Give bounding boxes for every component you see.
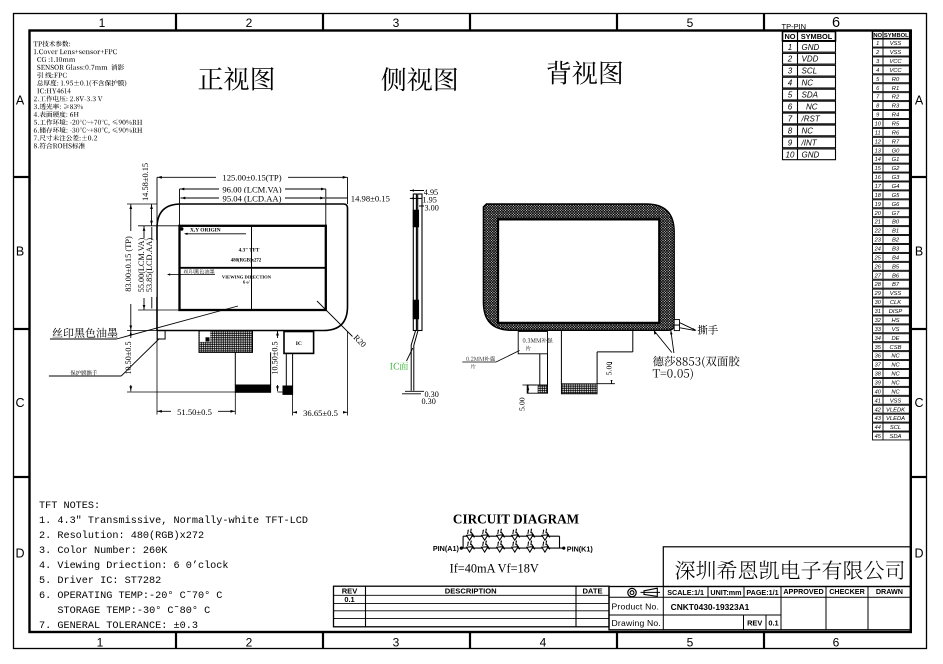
svg-text:43: 43 <box>875 416 882 422</box>
svg-text:3. Color Number: 260K: 3. Color Number: 260K <box>39 545 168 557</box>
svg-text:PIN(A1): PIN(A1) <box>433 544 460 553</box>
svg-text:6: 6 <box>832 15 840 31</box>
svg-text:10: 10 <box>875 122 882 128</box>
svg-text:IC: IC <box>296 341 302 347</box>
svg-text:B3: B3 <box>892 247 900 253</box>
svg-text:20: 20 <box>874 211 882 217</box>
svg-text:1: 1 <box>788 43 792 52</box>
svg-text:3: 3 <box>788 67 793 76</box>
svg-text:40: 40 <box>875 389 882 395</box>
svg-text:33: 33 <box>875 327 882 333</box>
svg-text:PAGE:1/1: PAGE:1/1 <box>746 588 778 597</box>
svg-text:14.58±0.15: 14.58±0.15 <box>141 163 150 201</box>
svg-text:39: 39 <box>875 380 881 386</box>
svg-text:8: 8 <box>788 126 793 135</box>
svg-text:53.85(LCD.AA): 53.85(LCD.AA) <box>145 238 154 292</box>
svg-text:B7: B7 <box>892 282 900 288</box>
svg-text:14: 14 <box>875 157 881 163</box>
svg-text:NC: NC <box>891 354 900 360</box>
svg-text:GND: GND <box>802 43 820 52</box>
svg-text:DE: DE <box>891 336 899 342</box>
svg-text:11: 11 <box>875 130 881 136</box>
svg-text:27: 27 <box>874 273 882 279</box>
svg-text:UNIT:mm: UNIT:mm <box>710 588 741 597</box>
svg-text:NC: NC <box>891 372 900 378</box>
svg-text:VSS: VSS <box>890 291 902 297</box>
svg-text:9: 9 <box>876 113 879 119</box>
svg-text:19: 19 <box>875 202 881 208</box>
svg-text:7: 7 <box>788 114 793 123</box>
svg-text:SYMBOL: SYMBOL <box>884 33 909 39</box>
svg-text:51.50±0.5: 51.50±0.5 <box>177 407 212 417</box>
svg-text:CNKT0430-19323A1: CNKT0430-19323A1 <box>671 602 750 612</box>
svg-text:5: 5 <box>687 16 694 30</box>
svg-text:6: 6 <box>788 103 793 112</box>
svg-text:G4: G4 <box>892 184 900 190</box>
svg-text:1: 1 <box>99 16 106 30</box>
svg-text:32: 32 <box>875 318 882 324</box>
svg-text:D: D <box>15 547 24 561</box>
svg-text:21: 21 <box>874 220 881 226</box>
svg-text:42: 42 <box>875 407 882 413</box>
svg-text:C: C <box>914 396 923 410</box>
svg-text:2: 2 <box>787 55 793 64</box>
svg-text:28: 28 <box>874 282 882 288</box>
svg-text:HS: HS <box>891 318 899 324</box>
svg-text:R3: R3 <box>892 104 900 110</box>
svg-text:/RST: /RST <box>801 114 821 123</box>
svg-text:NC: NC <box>891 380 900 386</box>
svg-text:3.00: 3.00 <box>425 203 439 212</box>
svg-text:5: 5 <box>788 91 793 100</box>
svg-text:D: D <box>914 547 923 561</box>
svg-text:B2: B2 <box>892 238 900 244</box>
svg-text:10.50±0.5: 10.50±0.5 <box>271 341 280 374</box>
svg-text:1: 1 <box>97 636 104 650</box>
svg-text:37: 37 <box>875 363 882 369</box>
svg-text:VCC: VCC <box>889 68 902 74</box>
svg-text:41: 41 <box>875 398 881 404</box>
svg-text:G6: G6 <box>892 202 901 208</box>
svg-text:Product No.: Product No. <box>612 602 660 612</box>
svg-text:35: 35 <box>875 345 882 351</box>
svg-text:NC: NC <box>802 126 814 135</box>
svg-text:A: A <box>915 94 924 108</box>
svg-text:C: C <box>15 396 24 410</box>
svg-text:B0: B0 <box>892 220 900 226</box>
svg-text:TP-PIN: TP-PIN <box>782 22 807 31</box>
svg-text:38: 38 <box>875 372 882 378</box>
svg-text:14.98±0.15: 14.98±0.15 <box>351 194 390 204</box>
svg-text:VDD: VDD <box>802 55 819 64</box>
svg-text:R1: R1 <box>892 86 899 92</box>
svg-text:4: 4 <box>876 68 879 74</box>
svg-text:CSB: CSB <box>890 345 902 351</box>
svg-text:480(RGB)x272: 480(RGB)x272 <box>231 259 262 264</box>
svg-text:26: 26 <box>874 264 882 270</box>
svg-text:G2: G2 <box>892 166 901 172</box>
svg-text:B: B <box>915 245 923 259</box>
svg-text:NC: NC <box>806 103 818 112</box>
svg-text:NO: NO <box>784 32 795 41</box>
svg-text:DESCRIPTION: DESCRIPTION <box>445 587 497 596</box>
svg-text:18: 18 <box>875 193 882 199</box>
svg-text:VLEDK: VLEDK <box>886 407 906 413</box>
svg-text:/INT: /INT <box>801 138 818 147</box>
svg-text:36.65±0.5: 36.65±0.5 <box>303 408 338 418</box>
svg-text:95.04 (LCD.AA): 95.04 (LCD.AA) <box>223 193 282 203</box>
svg-text:34: 34 <box>875 336 881 342</box>
svg-text:4: 4 <box>788 79 793 88</box>
svg-text:3: 3 <box>393 636 400 650</box>
svg-text:B4: B4 <box>892 255 899 261</box>
svg-text:5. Driver IC: ST7282: 5. Driver IC: ST7282 <box>39 575 161 587</box>
svg-text:VLEDA: VLEDA <box>886 416 905 422</box>
svg-text:NC: NC <box>891 389 900 395</box>
svg-text:22: 22 <box>874 229 882 235</box>
svg-text:29: 29 <box>874 291 881 297</box>
svg-text:4. Viewing Driection: 6 0’cloc: 4. Viewing Driection: 6 0’clock <box>39 560 229 572</box>
svg-text:If=40mA Vf=18V: If=40mA Vf=18V <box>450 562 539 576</box>
svg-text:B1: B1 <box>892 229 899 235</box>
svg-text:17: 17 <box>875 184 882 190</box>
svg-text:0.1: 0.1 <box>344 595 354 604</box>
svg-text:36: 36 <box>875 354 882 360</box>
svg-text:G0: G0 <box>892 148 901 154</box>
svg-text:4: 4 <box>540 636 547 650</box>
svg-text:6: 6 <box>833 636 840 650</box>
svg-text:7. GENERAL TOLERANCE: ±0.3: 7. GENERAL TOLERANCE: ±0.3 <box>39 621 198 632</box>
svg-text:PIN(K1): PIN(K1) <box>567 545 594 554</box>
svg-text:G5: G5 <box>892 193 901 199</box>
svg-text:STORAGE TEMP:-30° C˜80° C: STORAGE TEMP:-30° C˜80° C <box>57 605 210 617</box>
svg-text:2: 2 <box>246 636 253 650</box>
svg-text:VS: VS <box>892 327 900 333</box>
svg-text:31: 31 <box>875 309 881 315</box>
svg-text:R2: R2 <box>892 95 900 101</box>
svg-text:23: 23 <box>874 238 882 244</box>
svg-text:2: 2 <box>246 16 253 30</box>
svg-text:DISP: DISP <box>889 309 903 315</box>
svg-text:16: 16 <box>875 175 882 181</box>
svg-text:Drawing No.: Drawing No. <box>612 618 661 628</box>
svg-text:SDA: SDA <box>802 91 818 100</box>
svg-text:25: 25 <box>874 255 882 261</box>
svg-text:24: 24 <box>874 247 881 253</box>
svg-text:DATE: DATE <box>582 587 602 596</box>
svg-text:A: A <box>16 94 25 108</box>
svg-text:5.00: 5.00 <box>605 362 614 376</box>
svg-text:10: 10 <box>786 150 795 159</box>
svg-text:6 o': 6 o' <box>243 280 250 285</box>
svg-text:6. OPERATING TEMP:-20° C˜70° C: 6. OPERATING TEMP:-20° C˜70° C <box>39 590 222 602</box>
svg-text:NC: NC <box>891 363 900 369</box>
svg-text:VSS: VSS <box>890 41 902 47</box>
svg-text:1. 4.3″ Transmissive, Normally: 1. 4.3″ Transmissive, Normally-white TFT… <box>39 515 308 527</box>
svg-text:83.00±0.15 (TP): 83.00±0.15 (TP) <box>124 236 133 292</box>
svg-text:30: 30 <box>875 300 882 306</box>
svg-text:NO: NO <box>873 33 882 39</box>
svg-text:DRAWN: DRAWN <box>876 587 903 596</box>
svg-text:CLK: CLK <box>890 300 902 306</box>
svg-text:B: B <box>16 245 24 259</box>
svg-text:1: 1 <box>876 41 879 47</box>
svg-text:G7: G7 <box>892 211 901 217</box>
svg-text:SDA: SDA <box>890 434 902 440</box>
svg-text:125.00±0.15(TP): 125.00±0.15(TP) <box>222 173 281 183</box>
svg-text:5: 5 <box>687 636 694 650</box>
svg-text:0.30: 0.30 <box>422 397 436 406</box>
svg-text:X,Y ORIGIN: X,Y ORIGIN <box>190 227 221 233</box>
svg-text:SCL: SCL <box>890 425 901 431</box>
svg-text:SCALE:1/1: SCALE:1/1 <box>667 588 704 597</box>
svg-text:TFT NOTES:: TFT NOTES: <box>39 501 100 512</box>
svg-text:SYMBOL: SYMBOL <box>801 32 833 41</box>
svg-text:13: 13 <box>875 148 882 154</box>
svg-text:44: 44 <box>875 425 881 431</box>
svg-text:CHECKER: CHECKER <box>829 587 865 596</box>
svg-text:45: 45 <box>875 434 882 440</box>
svg-text:REV: REV <box>747 619 762 628</box>
svg-text:3: 3 <box>393 16 400 30</box>
svg-text:R7: R7 <box>892 139 900 145</box>
svg-text:G3: G3 <box>892 175 901 181</box>
svg-text:SCL: SCL <box>802 67 818 76</box>
svg-text:0.1: 0.1 <box>768 619 778 628</box>
svg-text:15: 15 <box>875 166 882 172</box>
svg-text:VSS: VSS <box>890 398 902 404</box>
svg-text:GND: GND <box>802 150 820 159</box>
svg-text:CIRCUIT DIAGRAM: CIRCUIT DIAGRAM <box>453 512 580 527</box>
svg-text:R6: R6 <box>892 130 900 136</box>
svg-text:9: 9 <box>788 138 793 147</box>
svg-text:G1: G1 <box>892 157 900 163</box>
svg-text:B6: B6 <box>892 273 900 279</box>
svg-text:B5: B5 <box>892 264 900 270</box>
svg-text:2. Resolution: 480(RGB)x272: 2. Resolution: 480(RGB)x272 <box>39 530 204 542</box>
svg-text:12: 12 <box>875 139 882 145</box>
svg-text:NC: NC <box>802 79 814 88</box>
svg-text:5.00: 5.00 <box>518 397 527 411</box>
svg-text:4.3" TFT: 4.3" TFT <box>239 247 260 253</box>
svg-text:R4: R4 <box>892 113 899 119</box>
svg-text:R0: R0 <box>892 77 900 83</box>
svg-text:R5: R5 <box>892 122 900 128</box>
svg-text:VCC: VCC <box>889 59 902 65</box>
svg-text:VSS: VSS <box>890 50 902 56</box>
svg-text:APPROVED: APPROVED <box>783 587 823 596</box>
